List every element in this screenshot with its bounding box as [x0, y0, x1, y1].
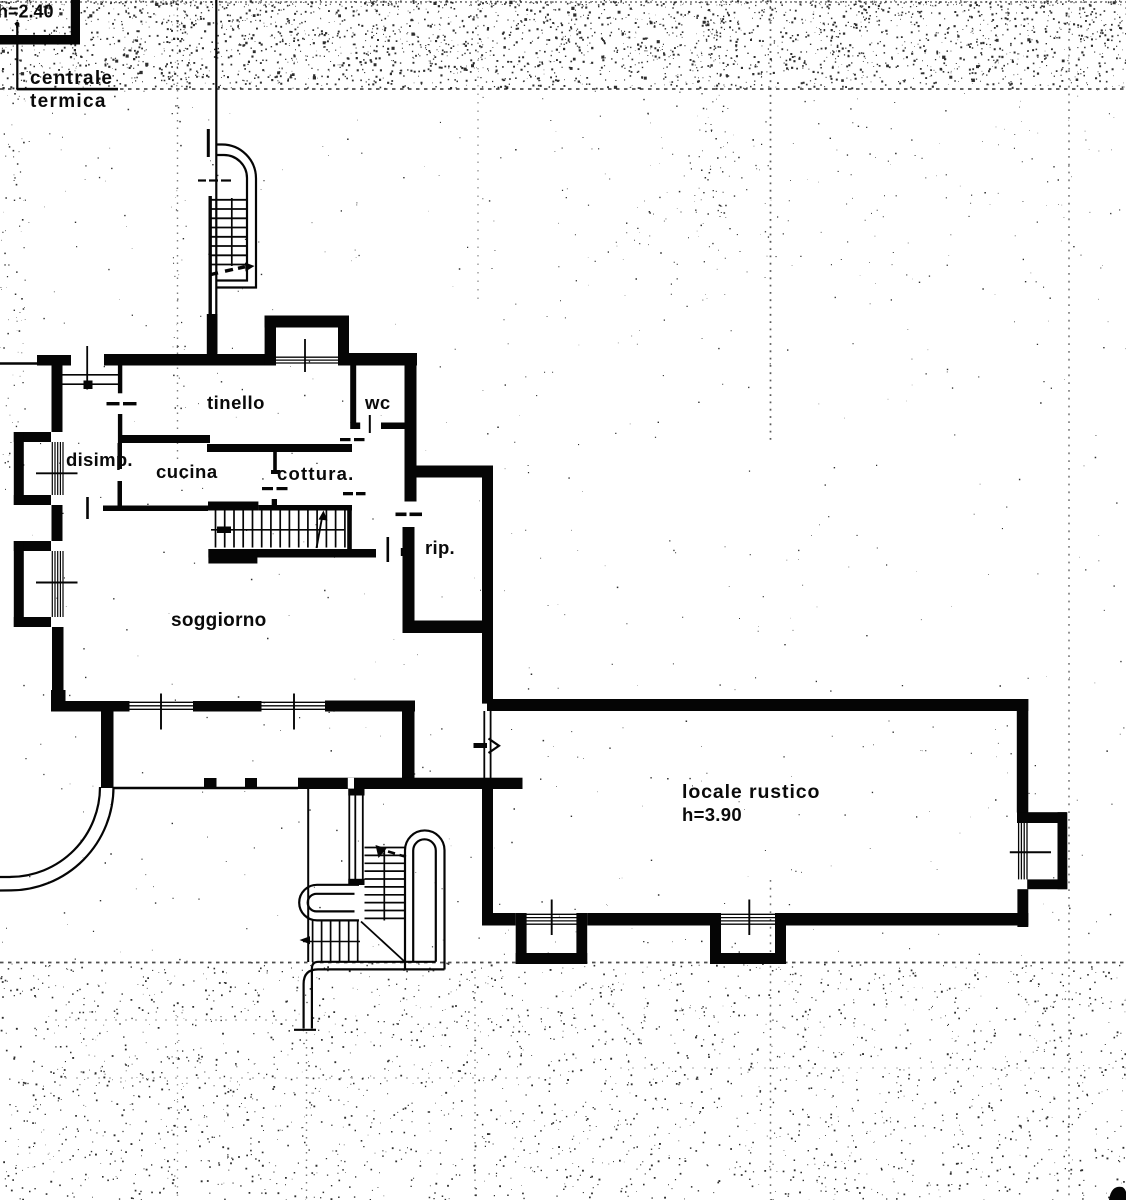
svg-text:tinello: tinello — [207, 392, 265, 413]
svg-text:soggiorno: soggiorno — [171, 610, 267, 631]
svg-text:h=3.90: h=3.90 — [682, 804, 742, 825]
svg-text:cucina: cucina — [156, 461, 218, 482]
svg-text:disimp.: disimp. — [66, 449, 133, 470]
svg-text:h=2.40: h=2.40 — [0, 2, 54, 22]
svg-text:rip.: rip. — [425, 537, 455, 558]
svg-text:wc: wc — [364, 392, 391, 413]
svg-text:termica: termica — [30, 91, 107, 112]
svg-text:locale rustico: locale rustico — [682, 781, 820, 803]
svg-text:cottura.: cottura. — [277, 463, 354, 484]
svg-text:centrale: centrale — [30, 68, 113, 89]
